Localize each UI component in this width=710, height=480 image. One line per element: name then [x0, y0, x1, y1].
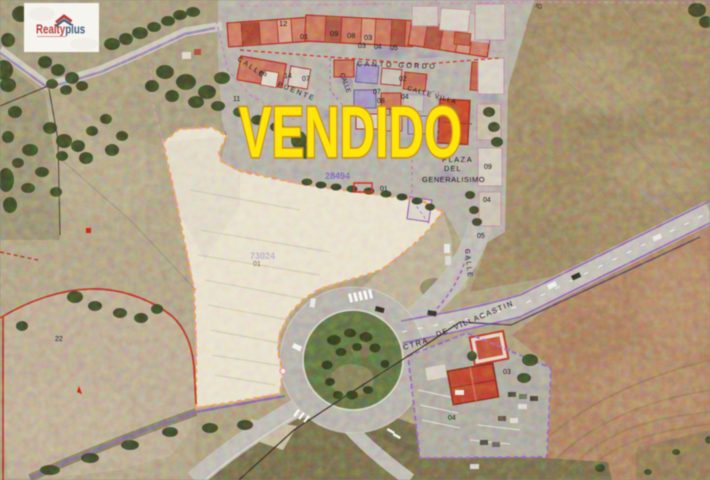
- svg-text:VENDIDO: VENDIDO: [239, 93, 462, 174]
- svg-text:09: 09: [330, 29, 338, 38]
- svg-text:73024: 73024: [250, 251, 275, 261]
- svg-text:07: 07: [302, 76, 310, 83]
- svg-text:01: 01: [253, 261, 261, 268]
- svg-text:08: 08: [347, 31, 355, 40]
- svg-text:03: 03: [503, 369, 511, 376]
- svg-text:02: 02: [399, 76, 407, 83]
- svg-text:09: 09: [484, 164, 492, 171]
- svg-text:03: 03: [358, 43, 366, 50]
- svg-text:05: 05: [477, 233, 485, 240]
- svg-text:06: 06: [259, 71, 267, 78]
- svg-text:22: 22: [55, 336, 63, 343]
- svg-text:14: 14: [284, 73, 292, 80]
- svg-text:04: 04: [448, 415, 456, 422]
- svg-text:01: 01: [380, 186, 388, 193]
- svg-text:01: 01: [300, 32, 308, 41]
- svg-text:05: 05: [390, 45, 398, 52]
- svg-text:10: 10: [246, 28, 254, 37]
- svg-text:Realtyplus: Realtyplus: [36, 23, 85, 36]
- svg-text:12: 12: [279, 19, 287, 28]
- svg-text:04: 04: [483, 197, 491, 204]
- svg-text:04: 04: [374, 44, 382, 51]
- svg-text:03: 03: [364, 33, 372, 42]
- svg-text:GENERALISIMO: GENERALISIMO: [422, 175, 485, 184]
